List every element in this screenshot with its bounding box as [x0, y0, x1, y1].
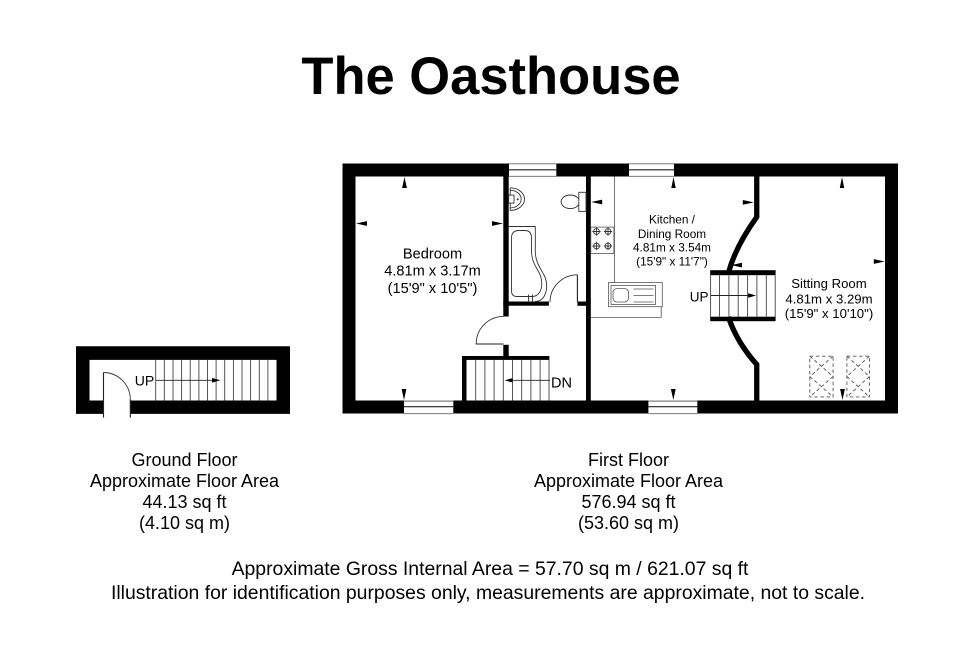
svg-text:Approximate Gross Internal Are: Approximate Gross Internal Area = 57.70 …	[232, 558, 749, 580]
svg-text:44.13 sq ft: 44.13 sq ft	[142, 492, 226, 512]
svg-text:Approximate Floor Area: Approximate Floor Area	[90, 471, 280, 491]
svg-text:(15'9" x 10'5"): (15'9" x 10'5")	[388, 281, 478, 297]
svg-text:4.81m x 3.17m: 4.81m x 3.17m	[384, 264, 481, 280]
svg-text:4.81m x 3.29m: 4.81m x 3.29m	[785, 292, 872, 307]
svg-text:Dining Room: Dining Room	[638, 227, 706, 241]
svg-text:The Oasthouse: The Oasthouse	[301, 47, 680, 106]
svg-text:Approximate Floor Area: Approximate Floor Area	[534, 471, 724, 491]
svg-text:Ground Floor: Ground Floor	[131, 450, 237, 470]
svg-text:Illustration for identificatio: Illustration for identification purposes…	[111, 582, 865, 604]
svg-text:576.94 sq ft: 576.94 sq ft	[581, 492, 675, 512]
svg-text:DN: DN	[551, 376, 572, 392]
svg-text:(4.10 sq m): (4.10 sq m)	[139, 513, 230, 533]
svg-text:4.81m x 3.54m: 4.81m x 3.54m	[633, 241, 711, 255]
svg-text:(15'9" x 10'10"): (15'9" x 10'10")	[785, 306, 873, 321]
svg-text:UP: UP	[135, 372, 154, 388]
svg-text:(15'9" x 11'7"): (15'9" x 11'7")	[636, 255, 708, 269]
svg-text:(53.60 sq m): (53.60 sq m)	[578, 513, 679, 533]
svg-text:Bedroom: Bedroom	[403, 246, 462, 262]
svg-text:UP: UP	[690, 290, 709, 305]
svg-text:Kitchen /: Kitchen /	[649, 212, 696, 226]
svg-text:Sitting Room: Sitting Room	[791, 276, 867, 291]
svg-text:First Floor: First Floor	[588, 450, 669, 470]
